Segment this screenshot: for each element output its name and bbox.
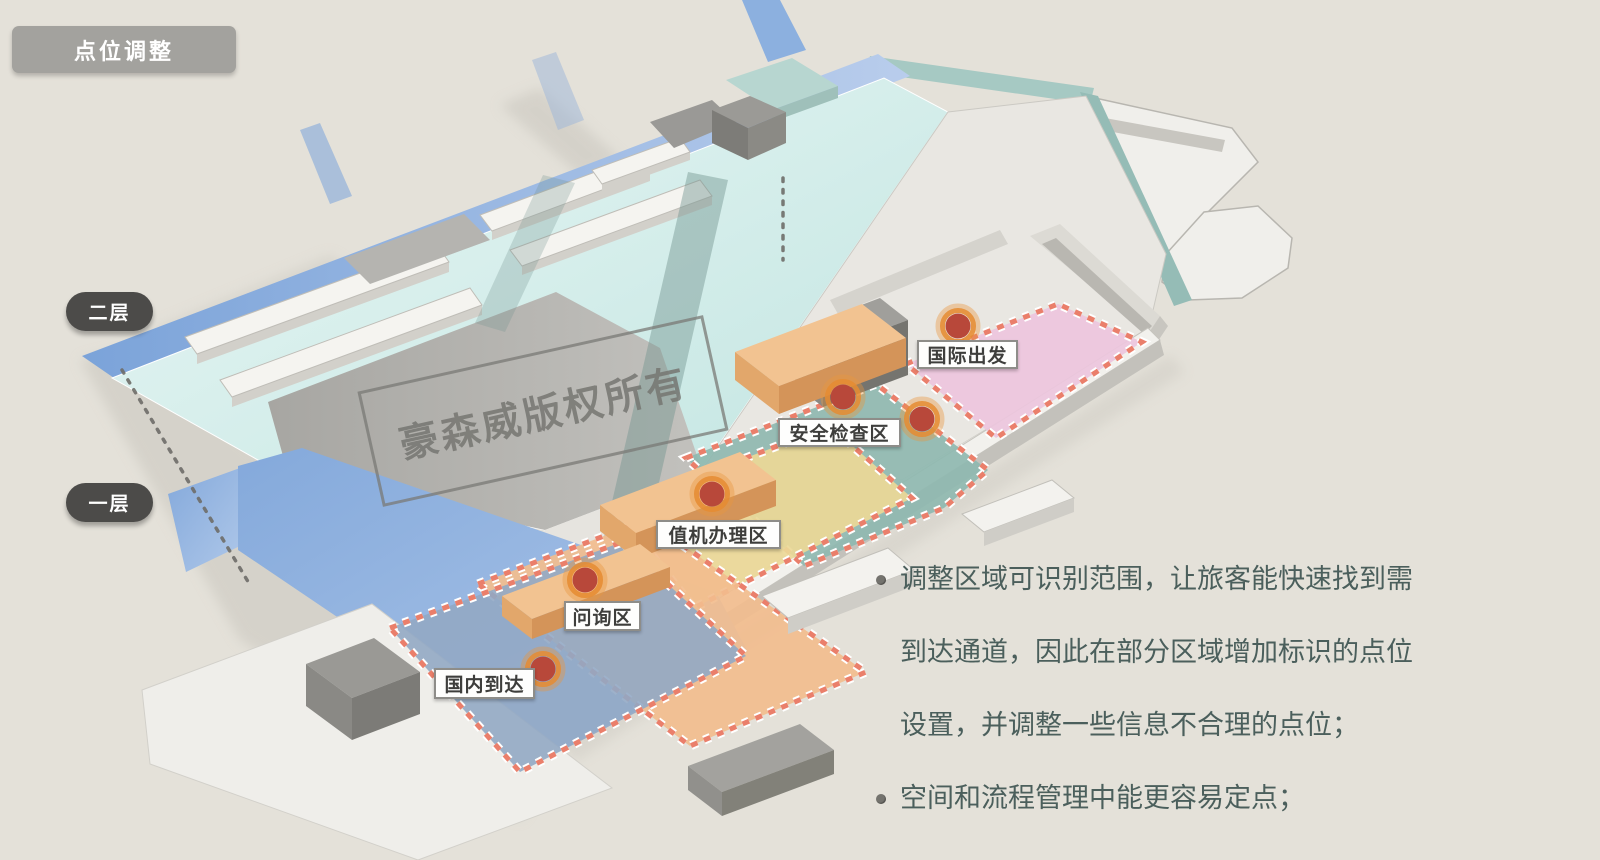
zone-label-text: 安全检查区 [789,419,889,446]
slide-title-badge: 点位调整 [12,26,236,73]
floor-badge-2f: 二层 [66,292,153,331]
point-marker [565,560,605,600]
zone-label-inquiry: 问询区 [564,601,641,631]
floor-1f-label: 一层 [88,489,130,516]
point-marker [902,399,942,439]
zone-label-check-in: 值机办理区 [656,520,781,549]
zone-label-international-departure: 国际出发 [917,340,1018,369]
note-text: 调整区域可识别范围，让旅客能快速找到需到达通道，因此在部分区域增加标识的点位设置… [900,564,1413,740]
slide: 点位调整 二层 一层 豪森威版权所有 国际出发 安全检查区 值机办理区 问询区 … [0,0,1600,860]
zone-label-security-check: 安全检查区 [778,418,901,447]
floor-badge-1f: 一层 [66,483,153,522]
floor-2f-label: 二层 [88,298,130,325]
point-marker [692,474,732,514]
zone-label-text: 问询区 [572,603,632,630]
point-marker [823,377,863,417]
note-item: 空间和流程管理中能更容易定点； [900,762,1422,835]
bullet-icon [876,575,886,585]
zone-label-domestic-arrival: 国内到达 [434,668,535,699]
bullet-icon [876,794,886,804]
zone-label-text: 值机办理区 [668,521,768,548]
notes-block: 调整区域可识别范围，让旅客能快速找到需到达通道，因此在部分区域增加标识的点位设置… [900,543,1422,835]
note-text: 空间和流程管理中能更容易定点； [900,783,1305,813]
note-item: 调整区域可识别范围，让旅客能快速找到需到达通道，因此在部分区域增加标识的点位设置… [900,543,1422,762]
slide-title: 点位调整 [74,34,174,66]
zone-label-text: 国际出发 [927,341,1007,368]
zone-label-text: 国内到达 [444,670,524,697]
